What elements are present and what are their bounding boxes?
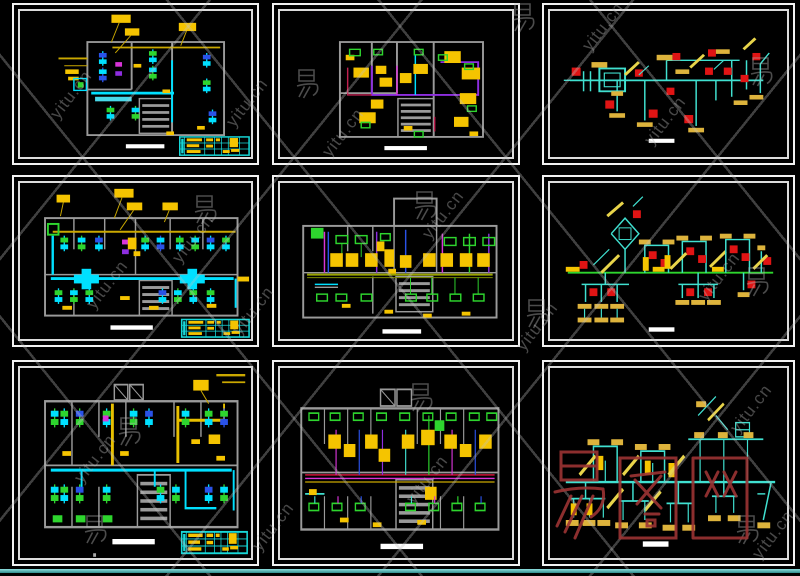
cad-drawing-frame xyxy=(278,9,514,159)
cad-thumbnail-1[interactable] xyxy=(12,3,259,165)
cad-preview-collage: yitu.cnyitu.cnyitu.cnyitu.cnyitu.cnyitu.… xyxy=(0,0,800,576)
cad-thumbnail-4[interactable] xyxy=(12,175,259,347)
cad-drawing-schematic xyxy=(550,11,787,157)
cad-thumbnail-3[interactable] xyxy=(542,3,795,165)
cad-drawing-frame xyxy=(278,181,514,341)
cad-thumbnail-8[interactable] xyxy=(272,360,520,566)
cad-drawing-frame xyxy=(548,181,789,341)
cad-drawing-floor-plan xyxy=(20,183,251,339)
cad-thumbnail-6[interactable] xyxy=(542,175,795,347)
cad-drawing-frame xyxy=(548,9,789,159)
cad-drawing-frame xyxy=(18,366,253,560)
cad-drawing-frame xyxy=(548,366,789,560)
bottom-edge-line xyxy=(0,569,800,573)
cad-drawing-frame xyxy=(18,9,253,159)
cad-thumbnail-7[interactable] xyxy=(12,360,259,566)
cad-drawing-floor-plan xyxy=(280,183,512,339)
cad-drawing-frame xyxy=(278,366,514,560)
cad-drawing-floor-plan xyxy=(280,11,512,157)
cad-thumbnail-2[interactable] xyxy=(272,3,520,165)
cad-drawing-floor-plan xyxy=(20,11,251,157)
cad-drawing-frame xyxy=(18,181,253,341)
cad-drawing-floor-plan xyxy=(20,368,251,558)
cad-thumbnail-5[interactable] xyxy=(272,175,520,347)
cad-drawing-schematic xyxy=(550,368,787,558)
cad-drawing-schematic xyxy=(550,183,787,339)
cad-thumbnail-9[interactable] xyxy=(542,360,795,566)
cad-drawing-floor-plan xyxy=(280,368,512,558)
